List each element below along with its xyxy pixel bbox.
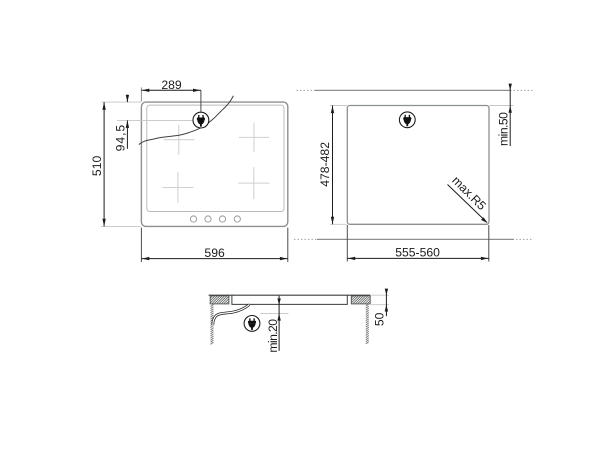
svg-text:510: 510: [90, 156, 104, 177]
svg-text:478-482: 478-482: [318, 142, 332, 187]
svg-text:94,5: 94,5: [113, 124, 127, 152]
svg-text:596: 596: [204, 246, 225, 260]
svg-text:555-560: 555-560: [395, 246, 440, 260]
svg-text:50: 50: [373, 312, 387, 326]
svg-text:min.50: min.50: [496, 112, 510, 146]
svg-text:289: 289: [161, 78, 182, 92]
svg-text:min.20: min.20: [266, 319, 280, 353]
